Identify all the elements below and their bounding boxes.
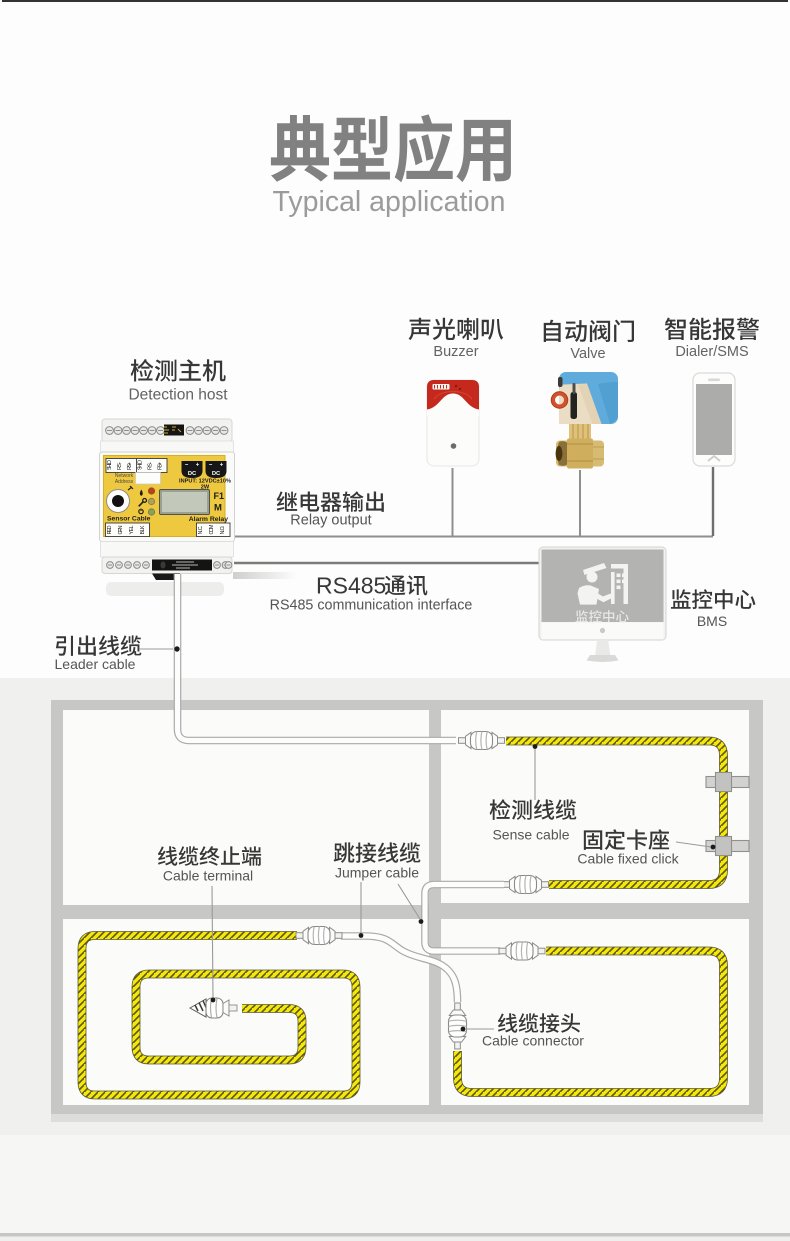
svg-text:Alarm Relay: Alarm Relay xyxy=(189,516,229,523)
svg-text:+: + xyxy=(196,463,200,469)
svg-text:Cable connector: Cable connector xyxy=(482,1033,584,1049)
svg-text:Address: Address xyxy=(115,479,134,485)
svg-text:−: − xyxy=(185,463,189,469)
svg-text:Sense cable: Sense cable xyxy=(492,827,569,843)
svg-text:M: M xyxy=(214,503,222,514)
svg-text:Leader cable: Leader cable xyxy=(55,656,136,672)
svg-text:Jumper cable: Jumper cable xyxy=(335,865,419,881)
svg-text:Valve: Valve xyxy=(570,346,605,362)
svg-text:COM: COM xyxy=(209,524,215,535)
svg-text:Buzzer: Buzzer xyxy=(433,344,478,360)
svg-text:YEL: YEL xyxy=(129,526,135,535)
svg-text:+: + xyxy=(220,463,224,469)
svg-text:Dialer/SMS: Dialer/SMS xyxy=(675,344,748,360)
svg-text:Cable fixed click: Cable fixed click xyxy=(577,851,679,867)
svg-text:N.O.: N.O. xyxy=(220,526,226,535)
svg-text:RS-: RS- xyxy=(117,462,123,470)
svg-text:RS-: RS- xyxy=(148,462,154,470)
svg-text:SHLD: SHLD xyxy=(107,460,113,470)
svg-text:Sensor Cable: Sensor Cable xyxy=(107,516,151,523)
svg-text:Relay output: Relay output xyxy=(290,513,371,529)
svg-text:F1: F1 xyxy=(214,491,225,501)
svg-text:BLK: BLK xyxy=(140,525,146,534)
svg-text:Cable terminal: Cable terminal xyxy=(163,868,253,884)
svg-text:RS485 communication interface: RS485 communication interface xyxy=(270,598,473,614)
svg-text:GRN: GRN xyxy=(118,525,124,534)
svg-text:RS485: RS485 xyxy=(316,573,386,599)
svg-text:−: − xyxy=(209,463,213,469)
svg-text:Detection host: Detection host xyxy=(128,387,228,404)
svg-text:RS+: RS+ xyxy=(158,462,164,470)
svg-text:Typical application: Typical application xyxy=(273,186,506,218)
svg-text:DC: DC xyxy=(212,471,221,477)
svg-text:N.C.: N.C. xyxy=(198,526,204,535)
svg-text:DC: DC xyxy=(188,471,197,477)
svg-text:BMS: BMS xyxy=(697,613,727,629)
svg-text:RS+: RS+ xyxy=(127,462,133,470)
svg-text:SHLD: SHLD xyxy=(138,460,144,470)
svg-text:RED: RED xyxy=(107,525,113,534)
